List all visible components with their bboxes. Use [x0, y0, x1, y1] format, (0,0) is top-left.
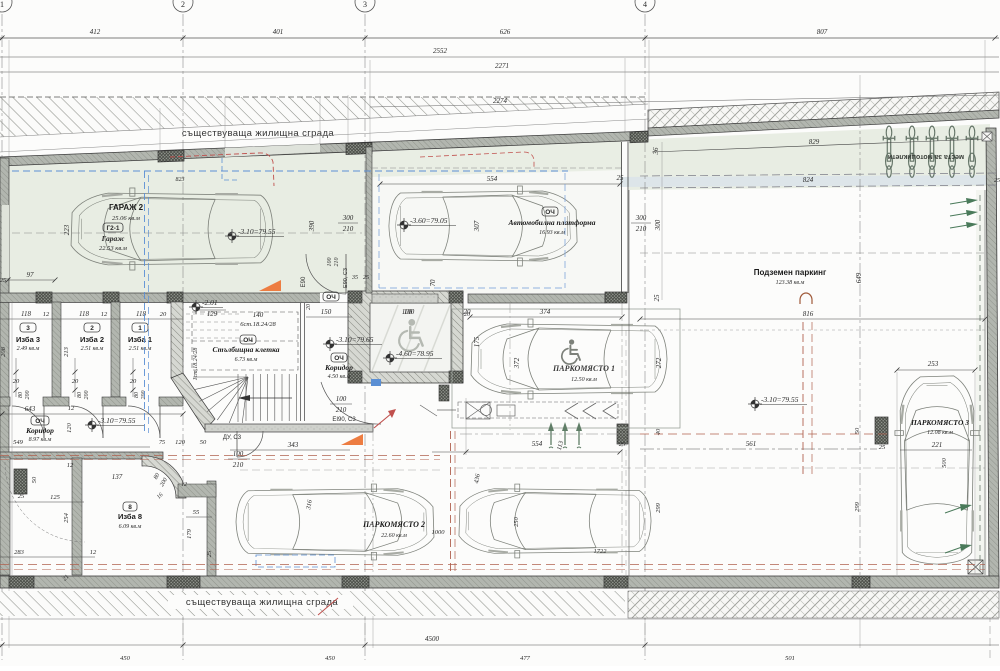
svg-text:549: 549 [13, 439, 24, 446]
svg-text:390: 390 [308, 220, 316, 232]
svg-text:200: 200 [25, 391, 31, 400]
svg-text:ОЧ: ОЧ [35, 418, 45, 425]
svg-text:12: 12 [90, 549, 97, 556]
svg-text:Г2-1: Г2-1 [106, 225, 119, 232]
svg-text:25: 25 [619, 441, 626, 448]
svg-text:2.51 кв.м: 2.51 кв.м [129, 346, 152, 352]
svg-text:200: 200 [84, 391, 90, 400]
svg-text:210: 210 [336, 406, 347, 414]
svg-text:343: 343 [287, 441, 299, 449]
svg-text:20: 20 [306, 304, 312, 310]
svg-text:20: 20 [464, 312, 470, 318]
svg-text:2.49 кв.м: 2.49 кв.м [17, 345, 40, 352]
svg-text:125: 125 [50, 494, 61, 501]
svg-text:съществуваща жилищна сграда: съществуваща жилищна сграда [186, 597, 339, 608]
svg-text:25.06 кв.м: 25.06 кв.м [112, 215, 140, 222]
svg-text:20: 20 [130, 378, 137, 385]
svg-text:253: 253 [928, 360, 939, 368]
svg-text:823: 823 [176, 177, 185, 183]
svg-text:210: 210 [343, 225, 354, 233]
svg-text:ОЧ: ОЧ [243, 337, 253, 344]
svg-text:25: 25 [994, 178, 1000, 184]
svg-text:места за мотоциклети: места за мотоциклети [888, 153, 964, 160]
svg-text:254: 254 [63, 512, 70, 523]
svg-text:223: 223 [63, 224, 71, 235]
svg-text:1722: 1722 [594, 548, 608, 555]
svg-text:E90: E90 [301, 276, 307, 287]
svg-text:100: 100 [336, 395, 347, 403]
svg-text:ОЧ: ОЧ [545, 209, 555, 216]
svg-text:Подземен паркинг: Подземен паркинг [754, 268, 827, 277]
svg-text:50: 50 [200, 439, 207, 446]
svg-text:374: 374 [539, 308, 551, 316]
svg-text:210: 210 [334, 258, 340, 267]
svg-text:501: 501 [785, 655, 795, 662]
svg-text:150: 150 [321, 308, 332, 316]
svg-text:120: 120 [175, 439, 186, 446]
svg-text:80: 80 [77, 392, 83, 398]
svg-text:ПАРКОМЯСТО 1: ПАРКОМЯСТО 1 [552, 364, 615, 373]
svg-text:25: 25 [363, 275, 369, 281]
svg-text:120: 120 [66, 422, 73, 433]
svg-text:450: 450 [120, 655, 131, 662]
svg-text:ПАРКОМЯСТО 3: ПАРКОМЯСТО 3 [910, 418, 969, 427]
svg-text:100: 100 [233, 450, 244, 458]
svg-text:-3.10=79.55: -3.10=79.55 [238, 227, 276, 236]
svg-text:20: 20 [13, 378, 20, 385]
svg-text:Изба 8: Изба 8 [118, 512, 142, 521]
svg-text:3: 3 [26, 325, 30, 332]
svg-text:12: 12 [43, 311, 50, 318]
svg-text:137: 137 [112, 473, 123, 481]
svg-text:12: 12 [181, 482, 187, 488]
svg-text:8.97 кв.м: 8.97 кв.м [29, 437, 52, 443]
svg-text:561: 561 [746, 440, 757, 448]
svg-text:816: 816 [803, 310, 814, 318]
svg-text:554: 554 [487, 175, 498, 183]
svg-text:12: 12 [67, 462, 74, 469]
svg-text:12.08 кв.м: 12.08 кв.м [927, 430, 953, 436]
svg-text:-3.10=79.65: -3.10=79.65 [336, 335, 374, 344]
svg-text:20: 20 [72, 378, 79, 385]
svg-text:300: 300 [654, 219, 662, 231]
svg-text:179: 179 [186, 528, 193, 539]
svg-text:25: 25 [653, 294, 661, 302]
svg-text:299: 299 [655, 502, 662, 513]
svg-text:8: 8 [128, 504, 132, 511]
svg-text:20: 20 [160, 311, 167, 318]
svg-text:221: 221 [932, 441, 943, 449]
svg-text:123.38 кв.м: 123.38 кв.м [776, 280, 805, 286]
svg-text:210: 210 [636, 225, 647, 233]
svg-text:824: 824 [803, 176, 814, 184]
svg-text:EI90, C3: EI90, C3 [332, 417, 356, 423]
svg-text:554: 554 [532, 440, 543, 448]
svg-text:1ст.18.24/28: 1ст.18.24/28 [192, 348, 199, 381]
svg-text:6.73 кв.м: 6.73 кв.м [235, 357, 258, 363]
svg-text:80: 80 [18, 392, 24, 398]
svg-text:626: 626 [500, 28, 511, 36]
svg-text:118: 118 [79, 310, 89, 318]
svg-text:75: 75 [159, 440, 165, 446]
svg-text:Автомобилна платформа: Автомобилна платформа [508, 218, 596, 227]
svg-text:55: 55 [193, 509, 200, 516]
svg-text:2274: 2274 [493, 97, 508, 105]
svg-text:Изба 3: Изба 3 [16, 335, 40, 344]
svg-text:307: 307 [473, 220, 481, 232]
svg-text:Коридор: Коридор [324, 363, 353, 372]
svg-text:-4.60=78.95: -4.60=78.95 [396, 349, 434, 358]
svg-text:Гараж: Гараж [101, 234, 125, 243]
svg-text:ОЧ: ОЧ [334, 355, 344, 362]
svg-text:4500: 4500 [425, 635, 440, 643]
svg-text:-2.01: -2.01 [202, 298, 218, 307]
svg-text:477: 477 [520, 655, 531, 662]
svg-text:97: 97 [27, 271, 35, 279]
svg-text:25: 25 [617, 174, 625, 182]
svg-text:450: 450 [325, 655, 336, 662]
svg-text:Изба 2: Изба 2 [80, 335, 104, 344]
svg-text:1000: 1000 [432, 529, 446, 536]
svg-text:22.60 кв.м: 22.60 кв.м [381, 533, 407, 539]
svg-text:6ст.18.24/28: 6ст.18.24/28 [240, 321, 276, 328]
svg-text:283: 283 [14, 549, 25, 556]
svg-text:250: 250 [513, 516, 520, 527]
svg-text:70: 70 [429, 279, 437, 287]
svg-text:1: 1 [0, 0, 4, 9]
svg-text:118: 118 [21, 310, 31, 318]
svg-text:36: 36 [652, 147, 660, 156]
svg-text:272: 272 [655, 357, 663, 368]
svg-text:129: 129 [207, 310, 218, 318]
svg-text:12.50 кв.м: 12.50 кв.м [571, 377, 597, 383]
svg-text:4.50 кв.м: 4.50 кв.м [328, 373, 351, 380]
svg-text:Стълбищна клетка: Стълбищна клетка [213, 345, 280, 354]
svg-text:210: 210 [233, 461, 244, 469]
svg-text:-3.10=79.55: -3.10=79.55 [98, 416, 136, 425]
svg-text:140: 140 [253, 311, 264, 319]
svg-text:175: 175 [473, 336, 481, 347]
svg-text:649: 649 [855, 272, 863, 283]
svg-text:2.51 кв.м: 2.51 кв.м [81, 346, 104, 352]
svg-text:1: 1 [138, 325, 142, 332]
svg-text:ДУ, С3: ДУ, С3 [223, 435, 242, 441]
svg-text:ГАРАЖ 2: ГАРАЖ 2 [109, 203, 144, 212]
svg-text:2: 2 [90, 325, 94, 332]
svg-text:401: 401 [273, 28, 284, 36]
svg-text:412: 412 [90, 28, 101, 36]
svg-text:300: 300 [635, 214, 647, 222]
svg-text:ПАРКОМЯСТО 2: ПАРКОМЯСТО 2 [362, 520, 425, 529]
svg-text:829: 829 [809, 138, 820, 146]
svg-text:ОЧ: ОЧ [326, 294, 336, 301]
svg-text:807: 807 [817, 28, 828, 36]
svg-text:25: 25 [18, 493, 25, 500]
svg-text:372: 372 [513, 357, 521, 369]
svg-text:12: 12 [101, 311, 108, 318]
svg-text:500: 500 [941, 457, 948, 468]
svg-text:643: 643 [25, 405, 36, 413]
svg-text:213: 213 [63, 346, 70, 357]
svg-text:2: 2 [181, 0, 185, 9]
svg-text:80: 80 [134, 392, 140, 398]
svg-text:200: 200 [141, 391, 147, 400]
svg-text:4: 4 [643, 0, 647, 9]
svg-text:208: 208 [0, 346, 7, 357]
svg-text:E90, C3: E90, C3 [343, 268, 349, 288]
svg-text:6.09 кв.м: 6.09 кв.м [119, 524, 142, 530]
svg-text:2552: 2552 [433, 47, 448, 55]
svg-text:съществуваща жилищна сграда: съществуваща жилищна сграда [182, 128, 335, 139]
svg-text:35: 35 [351, 275, 358, 281]
svg-text:-3.60=79.05: -3.60=79.05 [410, 216, 448, 225]
svg-text:-3.10=79.55: -3.10=79.55 [761, 395, 799, 404]
svg-text:25: 25 [206, 550, 213, 557]
svg-text:16.93 кв.м: 16.93 кв.м [539, 230, 565, 236]
svg-text:Коридор: Коридор [25, 426, 54, 435]
svg-text:25: 25 [879, 444, 886, 451]
svg-text:100: 100 [327, 258, 333, 267]
svg-text:2271: 2271 [495, 62, 509, 70]
svg-text:12: 12 [68, 405, 75, 412]
svg-text:22.53 кв.м: 22.53 кв.м [99, 245, 127, 252]
svg-text:300: 300 [342, 214, 354, 222]
svg-text:25: 25 [0, 278, 6, 284]
svg-text:100: 100 [402, 308, 413, 316]
svg-text:3: 3 [363, 0, 367, 9]
svg-text:50: 50 [31, 476, 38, 483]
